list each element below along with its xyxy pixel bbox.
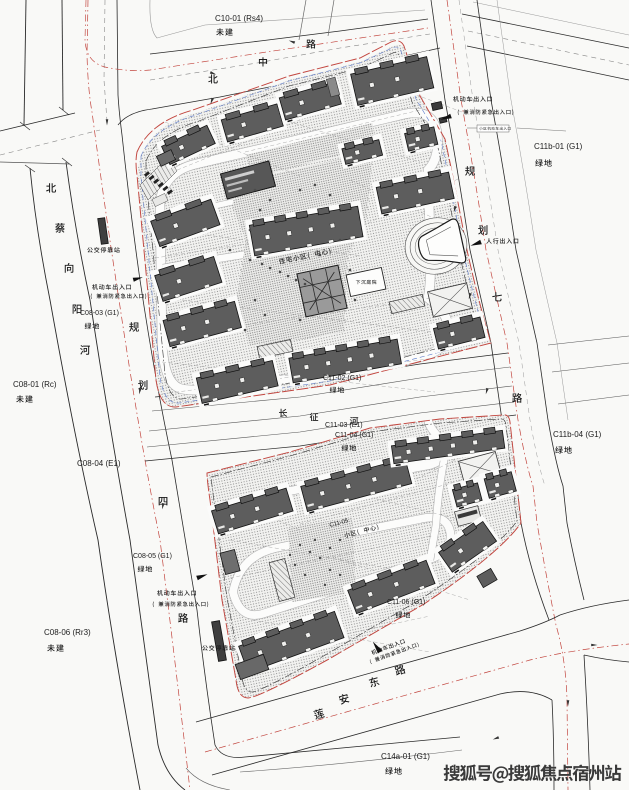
svg-text:C08-03 (G1): C08-03 (G1) <box>80 310 119 317</box>
svg-text:C08-05 (G1): C08-05 (G1) <box>133 553 172 560</box>
svg-text:C11b-04 (G1): C11b-04 (G1) <box>553 430 602 439</box>
svg-text:C08-04 (E1): C08-04 (E1) <box>77 459 121 468</box>
svg-text:C08-01 (Rc): C08-01 (Rc) <box>13 380 57 389</box>
svg-text:C10-01 (Rs4): C10-01 (Rs4) <box>215 14 263 23</box>
svg-text:C11-06 (G1): C11-06 (G1) <box>387 599 425 606</box>
svg-text:C14a-01 (G1): C14a-01 (G1) <box>381 752 430 761</box>
svg-text:C08-06 (Rr3): C08-06 (Rr3) <box>44 628 91 637</box>
svg-text:C11-02 (G1): C11-02 (G1) <box>323 375 361 382</box>
svg-text:C11b-01 (G1): C11b-01 (G1) <box>534 142 583 151</box>
svg-text:C11-03 (E1): C11-03 (E1) <box>325 422 363 429</box>
svg-text:C11-04 (G1): C11-04 (G1) <box>335 432 373 439</box>
